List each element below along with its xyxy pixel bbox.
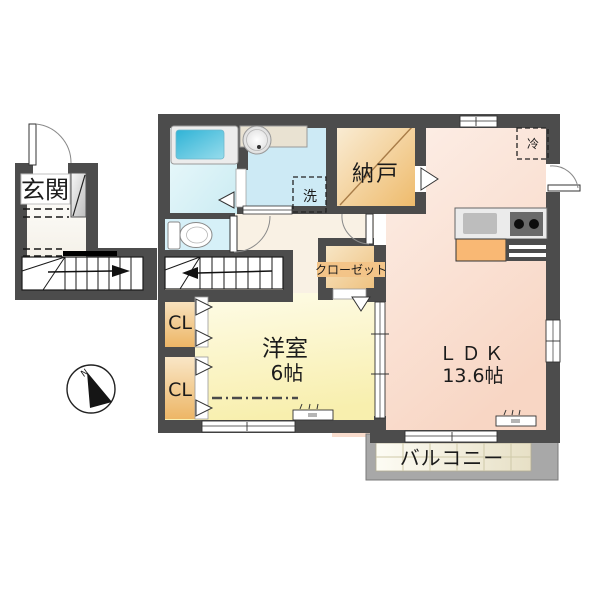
western-room-size-label: 6帖 <box>271 361 304 385</box>
toilet-door-leaf <box>230 216 237 252</box>
kitchen-sink <box>463 213 497 234</box>
north-compass-icon: N <box>67 365 115 413</box>
washing-machine-label: 洗 <box>303 189 317 205</box>
entrance-door-leaf <box>29 124 36 165</box>
storage-room-label: 納戸 <box>352 162 400 187</box>
entrance-stairs <box>22 251 143 290</box>
wash-basin <box>243 126 271 154</box>
stove-burner-icon <box>529 219 539 229</box>
cl-upper-label: CL <box>168 312 192 334</box>
floor-plan-canvas: 玄関 納戸 洗 冷 クローゼット CL CL 洋室 6帖 ＬＤＫ 13.6帖 バ… <box>0 0 600 600</box>
bathtub <box>176 130 224 159</box>
east-door-leaf <box>548 185 580 191</box>
kitchen-island-counter <box>456 239 506 261</box>
stair-handrail-bar <box>63 251 117 256</box>
stove-burner-icon <box>514 219 524 229</box>
closet-label: クローゼット <box>315 263 387 277</box>
stair-direction-line <box>48 271 112 272</box>
balcony-label: バルコニー <box>400 446 505 470</box>
ldk-size-label: 13.6帖 <box>442 365 503 387</box>
western-room-window <box>202 421 295 432</box>
ldk-door-leaf <box>366 214 373 244</box>
ldk-label: ＬＤＫ <box>438 343 507 365</box>
ldk-door-opening <box>374 214 386 245</box>
kitchen-partition <box>506 239 547 261</box>
floor-plan-page: 玄関 納戸 洗 冷 クローゼット CL CL 洋室 6帖 ＬＤＫ 13.6帖 バ… <box>0 0 600 600</box>
hall-stairs <box>165 257 283 289</box>
cl-lower-label: CL <box>168 379 192 401</box>
western-room-label: 洋室 <box>262 336 308 362</box>
balcony-sliding-window <box>405 431 497 442</box>
refrigerator-label: 冷 <box>527 137 539 151</box>
toilet-tank <box>168 222 180 249</box>
entrance-room-label: 玄関 <box>21 176 69 204</box>
north-window <box>460 116 497 127</box>
